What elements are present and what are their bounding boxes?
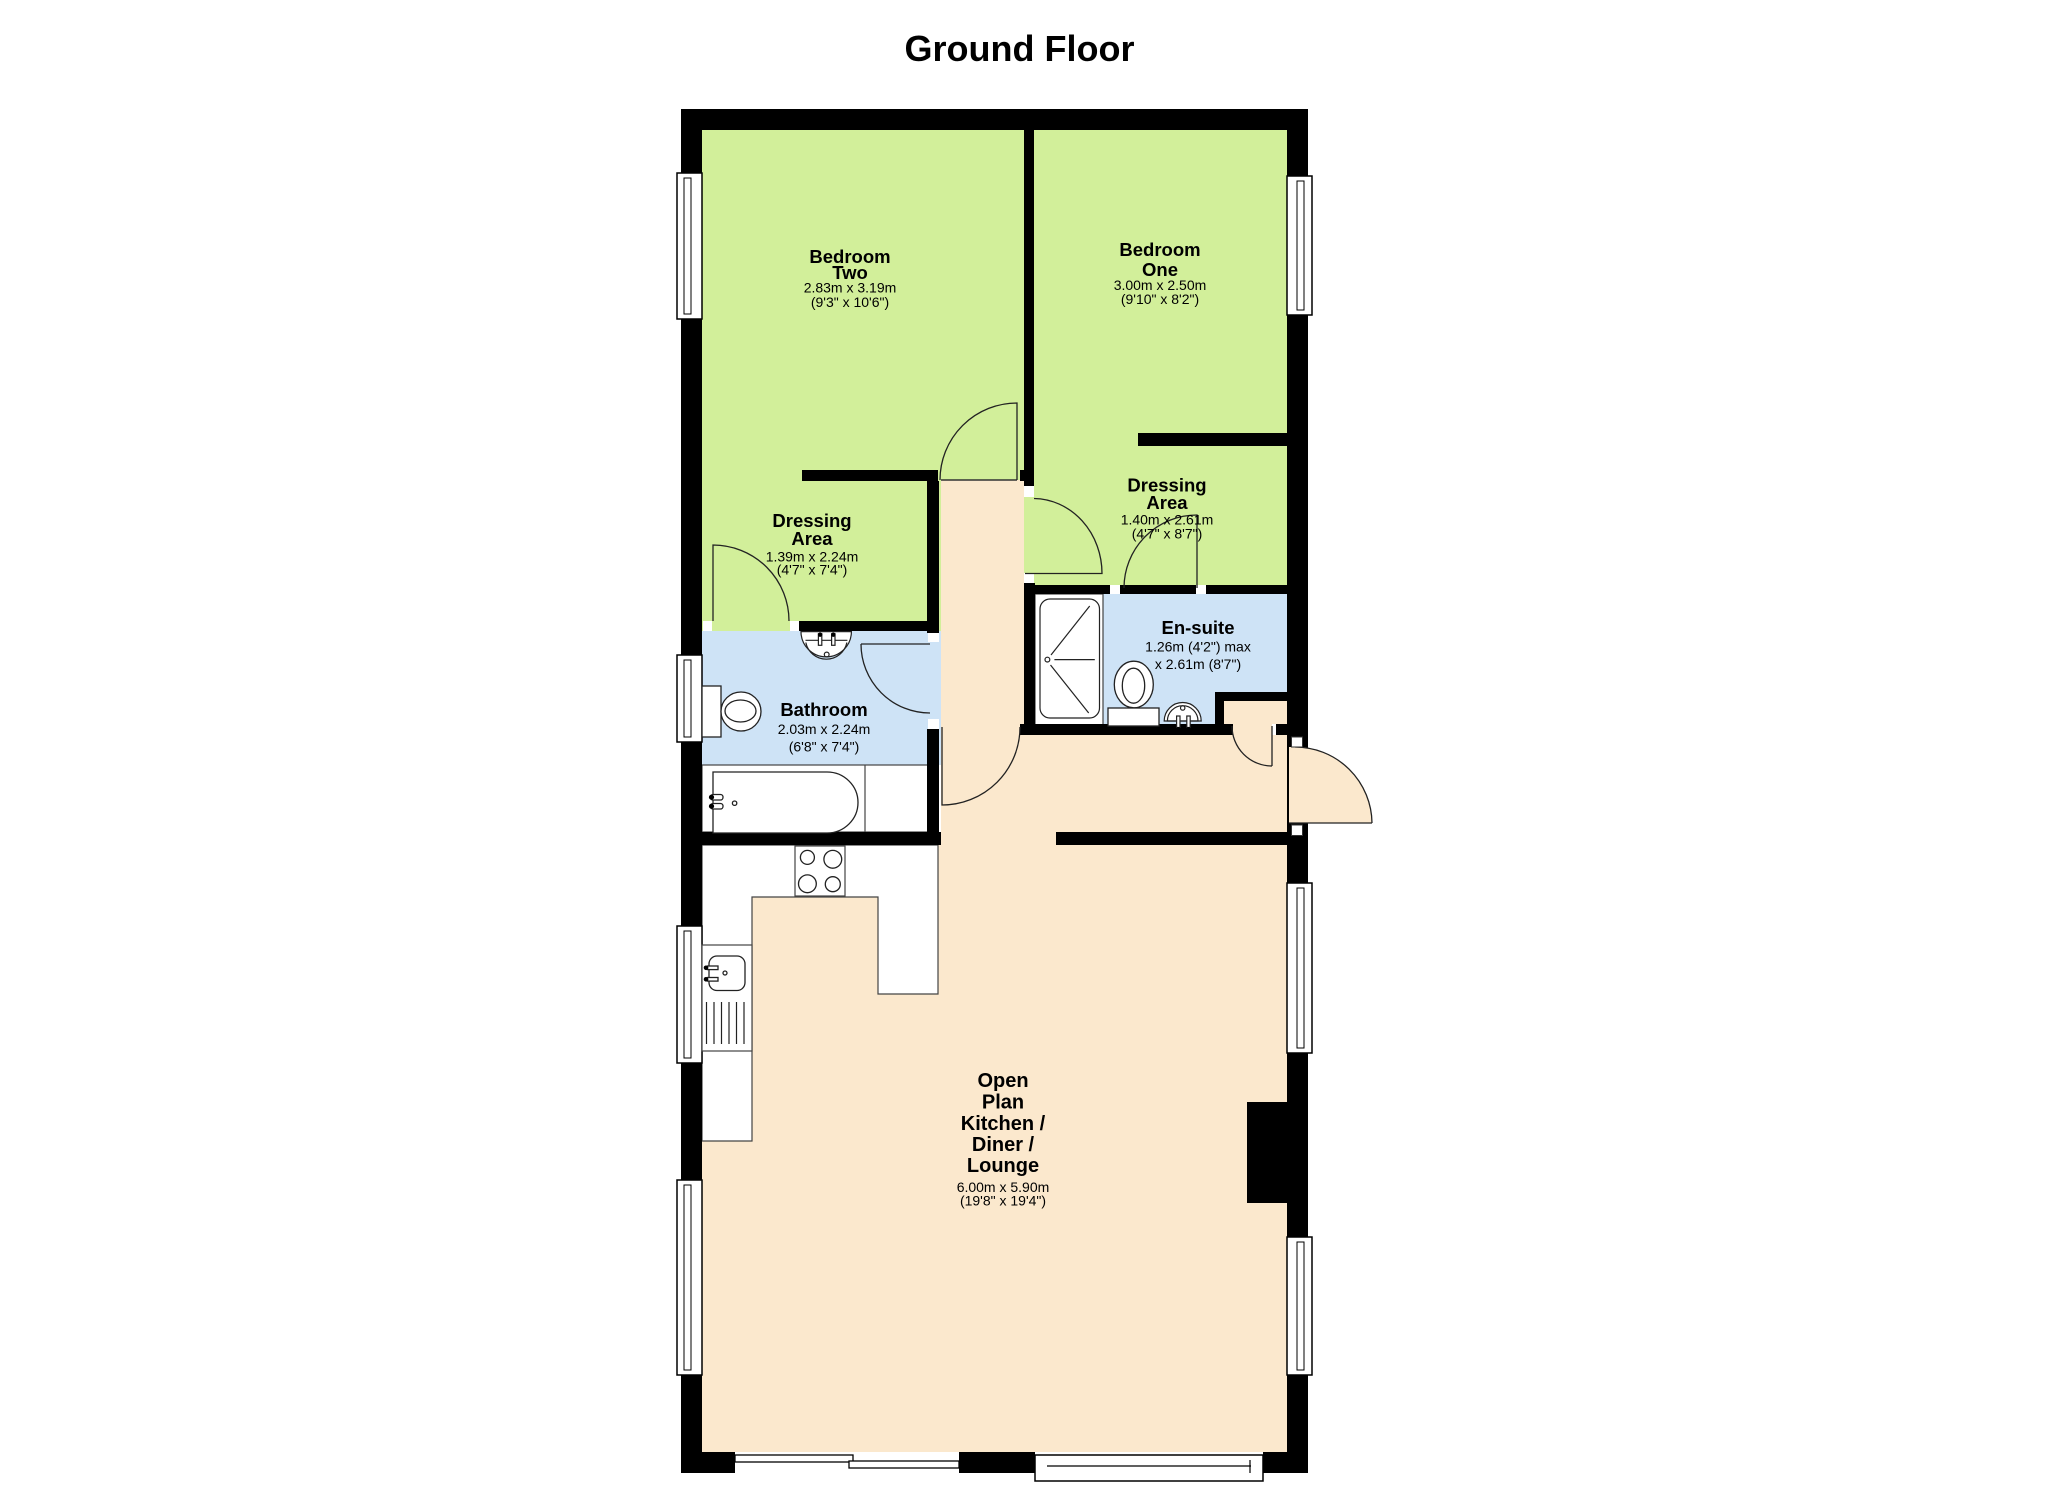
svg-text:x 2.61m (8'7"): x 2.61m (8'7") [1155,656,1241,672]
svg-text:Area: Area [1146,492,1188,513]
svg-text:1.26m (4'2") max: 1.26m (4'2") max [1145,639,1251,655]
svg-text:Area: Area [791,528,833,549]
svg-text:(19'8" x 19'4"): (19'8" x 19'4") [960,1193,1046,1209]
svg-text:Diner /: Diner / [972,1134,1035,1156]
svg-text:Bathroom: Bathroom [780,699,867,720]
svg-text:(4'7" x 7'4"): (4'7" x 7'4") [777,562,848,578]
svg-text:En-suite: En-suite [1162,617,1235,638]
svg-text:Plan: Plan [982,1092,1024,1114]
svg-text:2.03m x 2.24m: 2.03m x 2.24m [778,721,871,737]
svg-text:Kitchen /: Kitchen / [961,1113,1046,1135]
svg-text:(9'10" x 8'2"): (9'10" x 8'2") [1121,291,1199,307]
svg-text:Lounge: Lounge [967,1155,1039,1177]
svg-text:Bedroom: Bedroom [1119,239,1200,260]
svg-text:(6'8" x 7'4"): (6'8" x 7'4") [789,739,860,755]
svg-text:(4'7" x 8'7"): (4'7" x 8'7") [1132,526,1203,542]
svg-text:Ground Floor: Ground Floor [905,28,1135,69]
svg-text:(9'3" x 10'6"): (9'3" x 10'6") [811,294,889,310]
svg-text:Open: Open [977,1070,1028,1092]
